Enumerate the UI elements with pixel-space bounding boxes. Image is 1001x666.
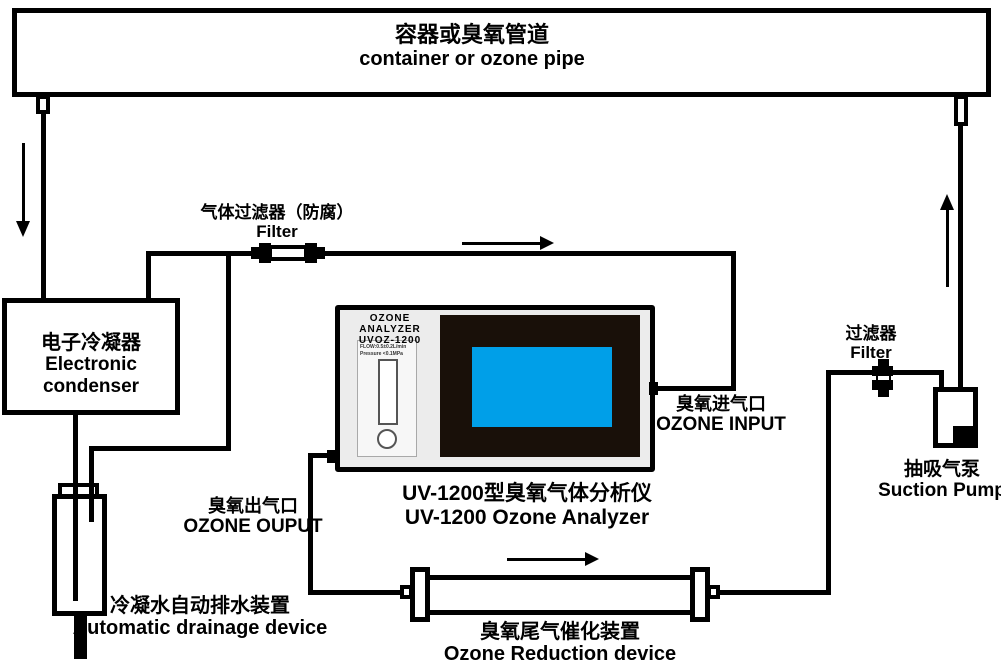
- reduction-label-en: Ozone Reduction device: [410, 643, 710, 665]
- gas-filter-body: [268, 245, 308, 261]
- analyzer-caption-zh: UV-1200型臭氧气体分析仪: [377, 482, 677, 506]
- analyzer-brand-text: OZONE ANALYZER: [339, 313, 441, 335]
- container-label-en: container or ozone pipe: [292, 48, 652, 70]
- right-pipe-fitting: [954, 95, 968, 126]
- pipe-container-to-condenser: [41, 112, 46, 300]
- flowmeter-spec-line2: Pressure <0.1MPa: [360, 351, 414, 358]
- gas-filter-label-en: Filter: [177, 222, 377, 241]
- container-label: 容器或臭氧管道 container or ozone pipe: [292, 23, 652, 70]
- analyzer-caption: UV-1200型臭氧气体分析仪 UV-1200 Ozone Analyzer: [377, 482, 677, 529]
- flow-down-arrow-line: [22, 143, 25, 223]
- pipe-pump-to-container: [958, 124, 963, 390]
- right-filter-nub-bottom: [878, 388, 889, 397]
- ozone-output-label-zh: 臭氧出气口: [178, 496, 328, 516]
- pipe-branch-down: [226, 251, 231, 451]
- pipe-condenser-up: [146, 251, 151, 300]
- reduction-body: [425, 575, 695, 615]
- right-filter-label-en: Filter: [811, 343, 931, 362]
- flow-right-arrow1-head-icon: [540, 236, 554, 250]
- flow-down-arrow-head-icon: [16, 221, 30, 237]
- flow-up-arrow-head-icon: [940, 194, 954, 210]
- flowmeter-tube: [378, 359, 398, 425]
- pipe-branch-horizontal: [89, 446, 231, 451]
- pipe-condenser-drain: [73, 413, 78, 601]
- gas-filter-label-zh: 气体过滤器（防腐）: [177, 203, 377, 222]
- ozone-input-label-zh: 臭氧进气口: [646, 394, 796, 414]
- right-filter-label-zh: 过滤器: [811, 324, 931, 343]
- flow-right-arrow2-head-icon: [585, 552, 599, 566]
- reduction-cap-left: [410, 567, 430, 622]
- condenser-label-zh: 电子冷凝器: [2, 332, 180, 354]
- pipe-filter-horizontal: [146, 251, 736, 256]
- pipe-branch-into-trap: [89, 446, 94, 522]
- flowmeter-spec-line1: FLOW:0.5±0.2L/min: [360, 344, 414, 351]
- gas-filter-label: 气体过滤器（防腐） Filter: [177, 203, 377, 241]
- ozone-output-label: 臭氧出气口 OZONE OUPUT: [178, 496, 328, 537]
- flow-up-arrow-line: [946, 209, 949, 287]
- pipe-from-reduction: [718, 590, 830, 595]
- analyzer-output-port: [327, 450, 336, 463]
- analyzer-caption-en: UV-1200 Ozone Analyzer: [377, 506, 677, 530]
- flow-right-arrow2-line: [507, 558, 587, 561]
- ozone-output-label-en: OZONE OUPUT: [178, 516, 328, 537]
- suction-pump-step: [953, 426, 973, 443]
- reduction-label: 臭氧尾气催化装置 Ozone Reduction device: [410, 621, 710, 666]
- ozone-input-label-en: OZONE INPUT: [646, 414, 796, 435]
- drainage-label-en: Automatic drainage device: [49, 617, 351, 639]
- analyzer-faceplate-title: OZONE ANALYZER UVOZ-1200: [339, 313, 441, 347]
- right-filter-label: 过滤器 Filter: [811, 324, 931, 362]
- reduction-cap-right: [690, 567, 710, 622]
- condenser-label-en: Electronic condenser: [2, 354, 180, 397]
- container-label-zh: 容器或臭氧管道: [292, 23, 652, 48]
- flowmeter-spec-text: FLOW:0.5±0.2L/min Pressure <0.1MPa: [360, 344, 414, 358]
- analyzer-screen: [472, 347, 612, 427]
- flowmeter-knob: [377, 429, 397, 449]
- drainage-label: 冷凝水自动排水装置 Automatic drainage device: [49, 595, 351, 640]
- gas-filter-nub-right: [315, 247, 325, 259]
- pipe-into-pump: [939, 370, 944, 392]
- suction-pump-label-en: Suction Pump: [852, 480, 1001, 501]
- suction-pump-label-zh: 抽吸气泵: [852, 459, 1001, 480]
- reduction-label-zh: 臭氧尾气催化装置: [410, 621, 710, 643]
- flow-right-arrow1-line: [462, 242, 542, 245]
- drainage-label-zh: 冷凝水自动排水装置: [49, 595, 351, 617]
- pipe-input-horizontal: [656, 386, 736, 391]
- pipe-exhaust-up: [826, 372, 831, 595]
- ozone-input-label: 臭氧进气口 OZONE INPUT: [646, 394, 796, 435]
- condenser-label: 电子冷凝器 Electronic condenser: [2, 332, 180, 397]
- suction-pump-label: 抽吸气泵 Suction Pump: [852, 459, 1001, 502]
- pipe-input-down: [731, 251, 736, 391]
